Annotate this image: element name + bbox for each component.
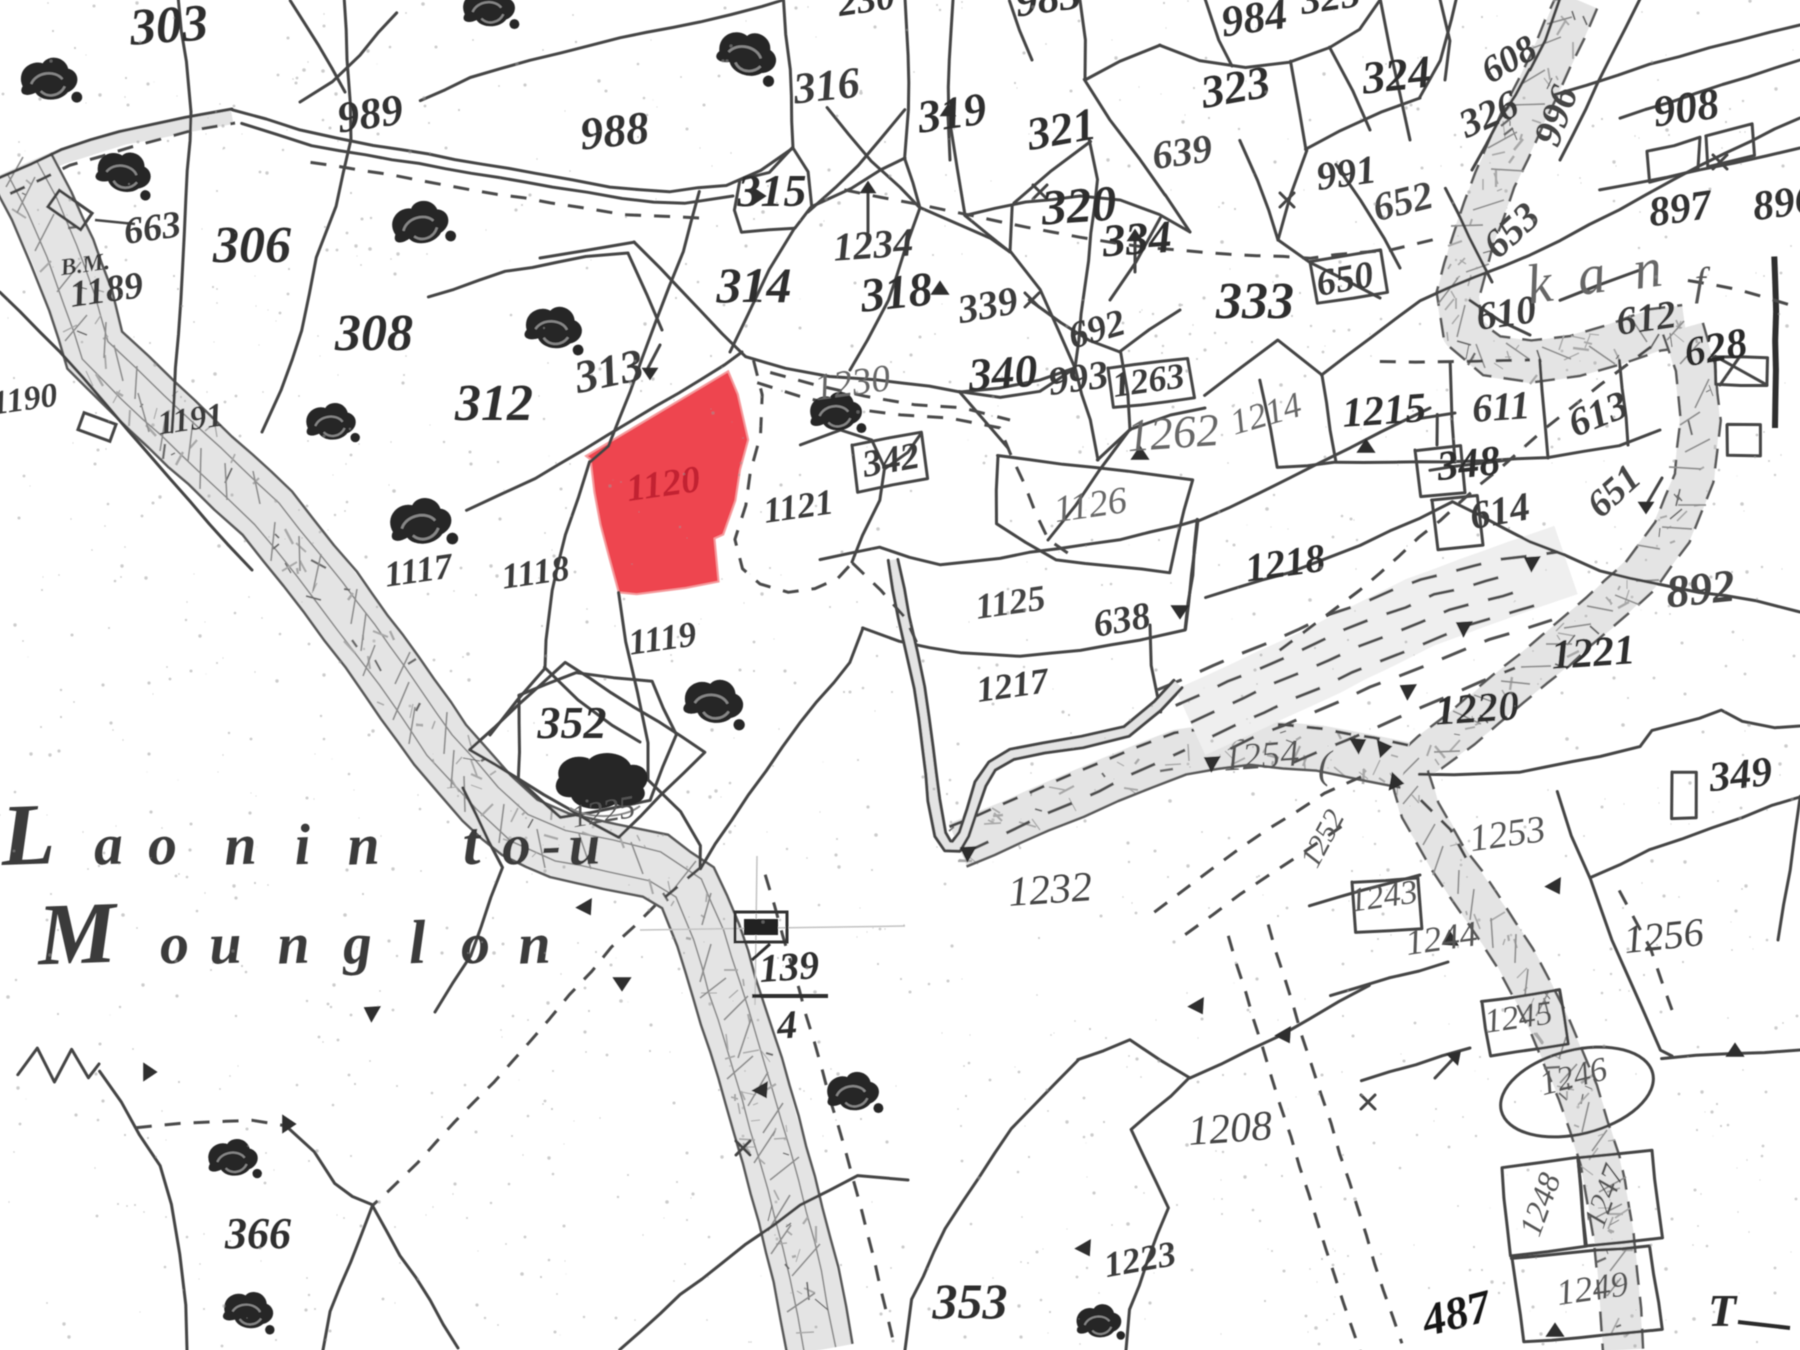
svg-text:M: M <box>34 885 120 985</box>
svg-text:308: 308 <box>334 305 413 362</box>
svg-text:639: 639 <box>1149 125 1215 178</box>
svg-text:340: 340 <box>966 345 1039 401</box>
svg-text:334: 334 <box>1100 211 1173 267</box>
svg-text:353: 353 <box>932 1273 1008 1329</box>
svg-text:i: i <box>293 812 311 878</box>
svg-text:1215: 1215 <box>1341 385 1428 437</box>
svg-text:314: 314 <box>716 257 792 313</box>
svg-text:n: n <box>223 811 258 877</box>
svg-text:o: o <box>501 812 532 878</box>
svg-text:o: o <box>460 911 491 977</box>
svg-text:349: 349 <box>1706 749 1774 801</box>
svg-text:352: 352 <box>537 697 607 748</box>
svg-text:l: l <box>408 909 428 978</box>
svg-text:324: 324 <box>1358 46 1433 104</box>
svg-text:312: 312 <box>454 375 533 432</box>
svg-text:319: 319 <box>913 83 989 143</box>
svg-text:892: 892 <box>1663 560 1737 618</box>
svg-text:o: o <box>147 812 178 878</box>
svg-text:1208: 1208 <box>1187 1103 1274 1155</box>
svg-text:306: 306 <box>212 217 291 274</box>
svg-text:318: 318 <box>857 262 935 322</box>
svg-text:908: 908 <box>1650 79 1722 137</box>
svg-text:366: 366 <box>224 1209 291 1258</box>
svg-text:315: 315 <box>737 165 807 216</box>
svg-text:333: 333 <box>1215 273 1294 330</box>
svg-text:611: 611 <box>1471 382 1532 431</box>
svg-text:663: 663 <box>121 203 183 253</box>
svg-text:316: 316 <box>790 58 862 114</box>
svg-text:348: 348 <box>1434 438 1502 490</box>
svg-text:989: 989 <box>334 85 406 143</box>
svg-text:-: - <box>541 812 563 878</box>
svg-text:897: 897 <box>1646 182 1717 237</box>
svg-text:896: 896 <box>1750 176 1800 230</box>
svg-text:n: n <box>346 811 381 877</box>
svg-text:n: n <box>517 910 552 976</box>
svg-text:o: o <box>159 911 190 977</box>
svg-text:1256: 1256 <box>1621 909 1705 962</box>
svg-text:1262: 1262 <box>1125 404 1220 461</box>
svg-text:1221: 1221 <box>1550 627 1637 679</box>
svg-text:988: 988 <box>577 102 651 160</box>
svg-text:991: 991 <box>1313 146 1379 199</box>
svg-text:g: g <box>340 911 373 977</box>
svg-text:4: 4 <box>775 1001 799 1047</box>
svg-text:1234: 1234 <box>832 219 915 269</box>
svg-text:L: L <box>0 786 57 885</box>
svg-text:1220: 1220 <box>1434 683 1521 735</box>
svg-text:n: n <box>276 910 311 976</box>
svg-text:T: T <box>1708 1285 1738 1336</box>
svg-text:a: a <box>93 812 124 878</box>
svg-text:u: u <box>567 811 602 877</box>
svg-text:1232: 1232 <box>1007 864 1094 916</box>
svg-text:993: 993 <box>1045 351 1111 404</box>
svg-text:303: 303 <box>127 0 210 57</box>
svg-text:139: 139 <box>758 942 821 991</box>
svg-text:u: u <box>208 910 243 976</box>
